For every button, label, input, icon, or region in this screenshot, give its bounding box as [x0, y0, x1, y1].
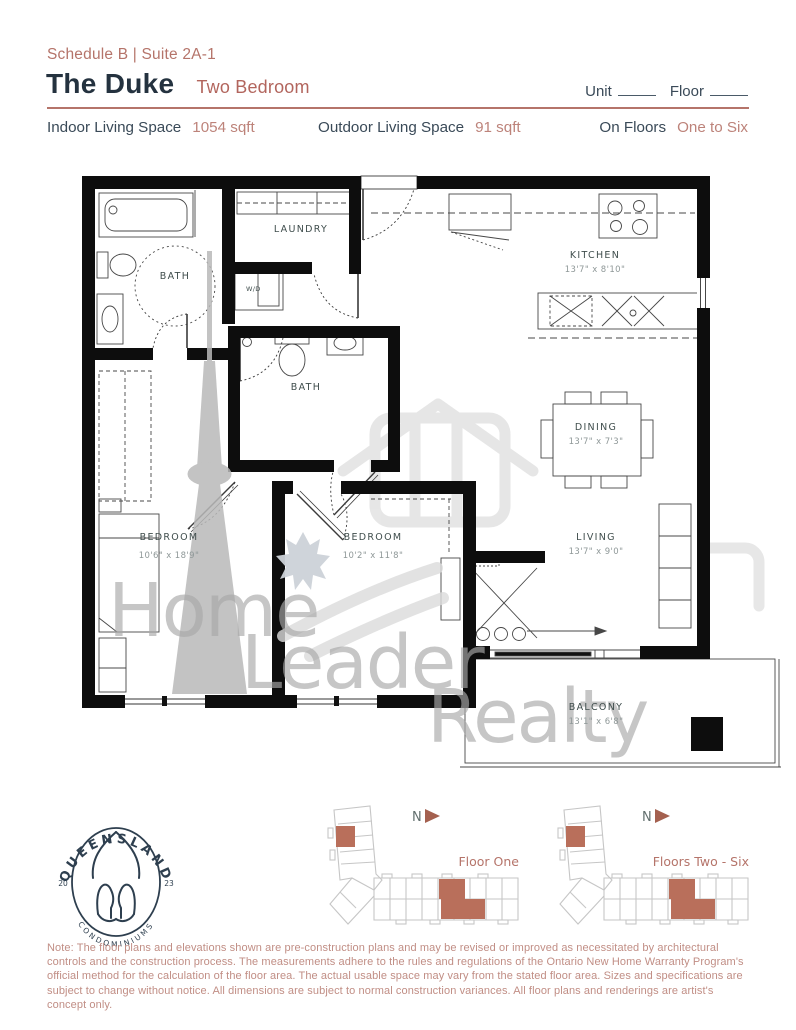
room-dims-balcony: 13'1" x 6'8": [569, 717, 624, 727]
header-divider: [47, 107, 749, 109]
logo-year-left: 20: [58, 879, 68, 888]
svg-text:QUEENSLAND: QUEENSLAND: [57, 832, 175, 885]
floors-spec: On Floors One to Six: [599, 119, 748, 136]
floor-plan: Home Leader Realty BATH LAUNDRY W/D BATH…: [75, 166, 790, 780]
north-arrow-icon: [425, 809, 440, 823]
room-dims-kitchen: 13'7" x 8'10": [565, 265, 626, 275]
room-dims-dining: 13'7" x 7'3": [569, 437, 624, 447]
room-label-balcony: BALCONY: [569, 702, 623, 713]
room-dims-bedroom2: 10'2" x 11'8": [343, 551, 404, 561]
floors-label: On Floors: [599, 119, 666, 136]
floorplan-sheet: Schedule B | Suite 2A-1 The Duke Two Bed…: [0, 0, 796, 1030]
floor-blank: [710, 82, 748, 96]
north-label: N: [642, 810, 652, 825]
floors-value: One to Six: [677, 119, 748, 136]
schedule-line: Schedule B | Suite 2A-1: [47, 46, 216, 64]
queensland-logo: QUEENSLAND CONDOMINIUMS 20 23: [36, 798, 196, 958]
north-label: N: [412, 810, 422, 825]
indoor-label: Indoor Living Space: [47, 119, 181, 136]
logo-year-right: 23: [164, 879, 174, 888]
suite-type: Two Bedroom: [196, 77, 309, 98]
floor-label: Floor: [670, 83, 704, 100]
room-label-dining: DINING: [575, 422, 617, 433]
room-label-laundry: LAUNDRY: [274, 224, 328, 235]
outdoor-value: 91 sqft: [475, 119, 521, 136]
outdoor-label: Outdoor Living Space: [318, 119, 464, 136]
logo-arc-top: QUEENSLAND: [57, 832, 175, 885]
title-row: The Duke Two Bedroom: [46, 68, 310, 100]
unit-blank: [618, 82, 656, 96]
room-label-bath1: BATH: [160, 271, 190, 282]
room-label-bath2: BATH: [291, 382, 321, 393]
indoor-spec: Indoor Living Space 1054 sqft: [47, 119, 255, 136]
keyplan-floors-two-six: N Floors Two - Six: [542, 800, 762, 935]
keyplan-caption: Floors Two - Six: [653, 854, 749, 869]
north-arrow-icon: [655, 809, 670, 823]
note-text: Note: The floor plans and elevations sho…: [47, 941, 755, 1012]
room-label-bedroom2: BEDROOM: [344, 532, 403, 543]
specs-row: Indoor Living Space 1054 sqft Outdoor Li…: [0, 119, 796, 139]
room-dims-living: 13'7" x 9'0": [569, 547, 624, 557]
keyplan-floor-one: N Floor One: [312, 800, 532, 935]
unit-label: Unit: [585, 83, 612, 100]
room-label-bedroom1: BEDROOM: [140, 532, 199, 543]
page-title: The Duke: [46, 68, 174, 100]
room-label-living: LIVING: [576, 532, 616, 543]
room-label-kitchen: KITCHEN: [570, 250, 620, 261]
indoor-value: 1054 sqft: [192, 119, 255, 136]
room-dims-bedroom1: 10'6" x 18'9": [139, 551, 200, 561]
room-label-wd: W/D: [246, 285, 261, 293]
keyplan-caption: Floor One: [458, 854, 519, 869]
outdoor-spec: Outdoor Living Space 91 sqft: [318, 119, 521, 136]
unit-floor-row: Unit Floor: [585, 82, 748, 100]
